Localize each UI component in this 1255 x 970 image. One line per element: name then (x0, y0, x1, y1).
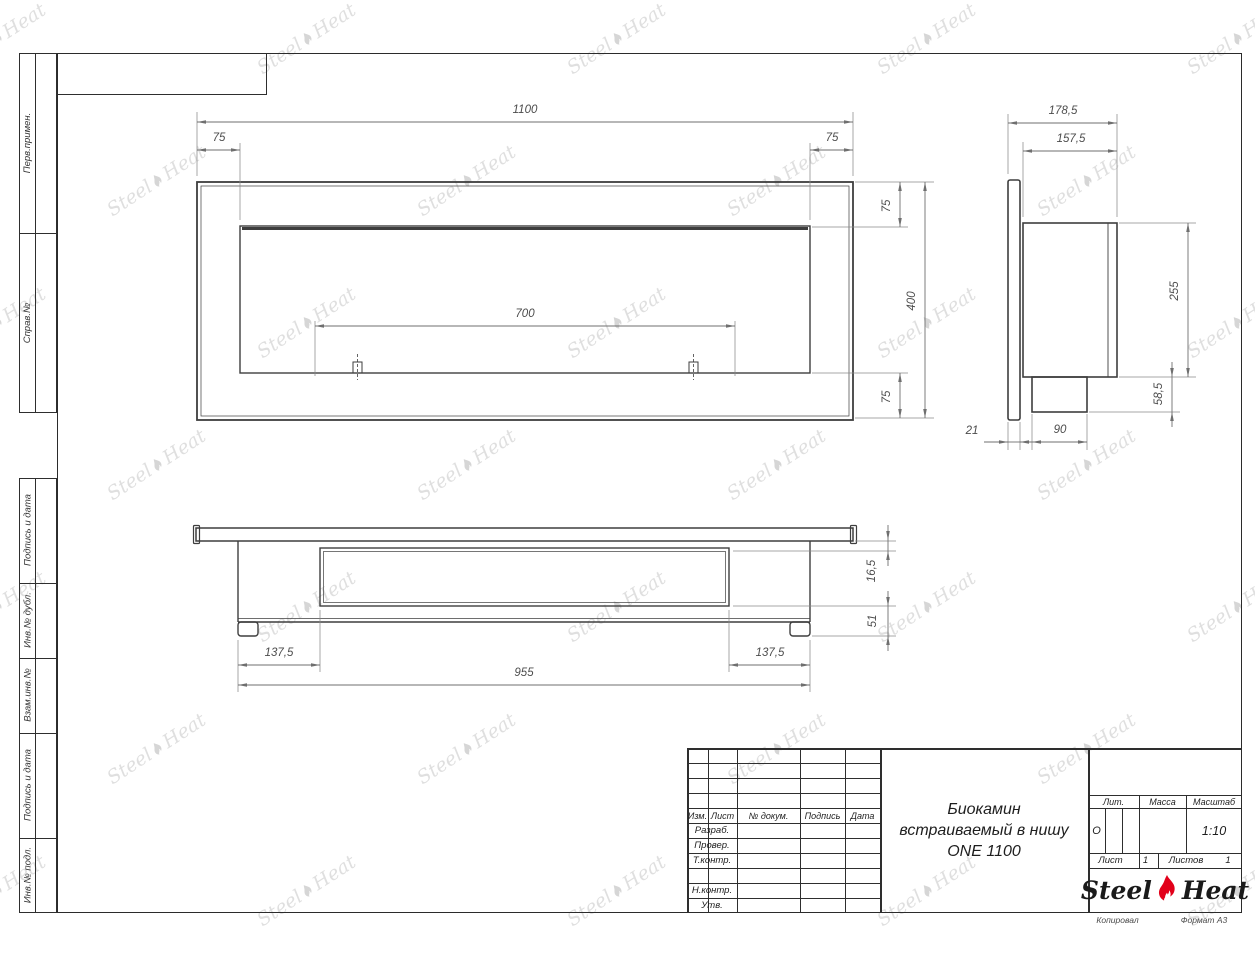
kopiroval-note: Копировал (1080, 915, 1155, 925)
tb-lit-value: О (1088, 808, 1105, 853)
tb-col-sign: Подпись (800, 808, 845, 823)
designation-box (57, 53, 267, 95)
margin-label-perv-primen: Перв.примен. (19, 53, 35, 233)
tb-row-utv: Утв. (688, 898, 736, 913)
drawing-title: Биокамин встраиваемый в нишу ONE 1100 (882, 748, 1086, 913)
tb-col-izm: Изм. (687, 808, 708, 823)
title-line-2: встраиваемый в нишу (899, 820, 1068, 841)
flame-icon (1156, 874, 1178, 908)
drawing-sheet: SteelHeatSteelHeatSteelHeatSteelHeatStee… (0, 0, 1255, 970)
format-note: Формат А3 (1168, 915, 1240, 925)
title-line-3: ONE 1100 (947, 841, 1021, 862)
margin-label-vzam-inv: Взам.инв.№ (20, 658, 36, 733)
title-line-1: Биокамин (947, 799, 1020, 820)
logo-heat-text: Heat (1182, 876, 1249, 905)
margin-label-sprav-no: Справ.№ (19, 233, 35, 413)
tb-scale-value: 1:10 (1186, 808, 1242, 853)
margin-label-inv-podl: Инв.№ подл. (20, 838, 36, 913)
tb-massa-header: Масса (1139, 795, 1186, 808)
margin-label-podpis-data-1: Подпись и дата (20, 478, 36, 583)
tb-list-label: Лист (1088, 853, 1133, 868)
tb-col-list: Лист (708, 808, 737, 823)
tb-listov-label: Листов (1158, 853, 1214, 868)
tb-listov-value: 1 (1214, 853, 1242, 868)
tb-masshtab-header: Масштаб (1186, 795, 1242, 808)
tb-row-prover: Провер. (688, 838, 736, 853)
tb-col-date: Дата (845, 808, 880, 823)
logo-steel-text: Steel (1081, 876, 1152, 905)
tb-col-doc: № докум. (737, 808, 800, 823)
tb-list-value: 1 (1133, 853, 1158, 868)
tb-row-razrab: Разраб. (688, 823, 736, 838)
company-logo: Steel Heat (1088, 868, 1242, 913)
tb-row-nkontr: Н.контр. (688, 883, 736, 898)
margin-label-inv-dubl: Инв.№ дубл. (20, 583, 36, 658)
tb-row-tkontr: Т.контр. (688, 853, 736, 868)
tb-lit-header: Лит. (1088, 795, 1139, 808)
margin-label-podpis-data-2: Подпись и дата (20, 733, 36, 838)
